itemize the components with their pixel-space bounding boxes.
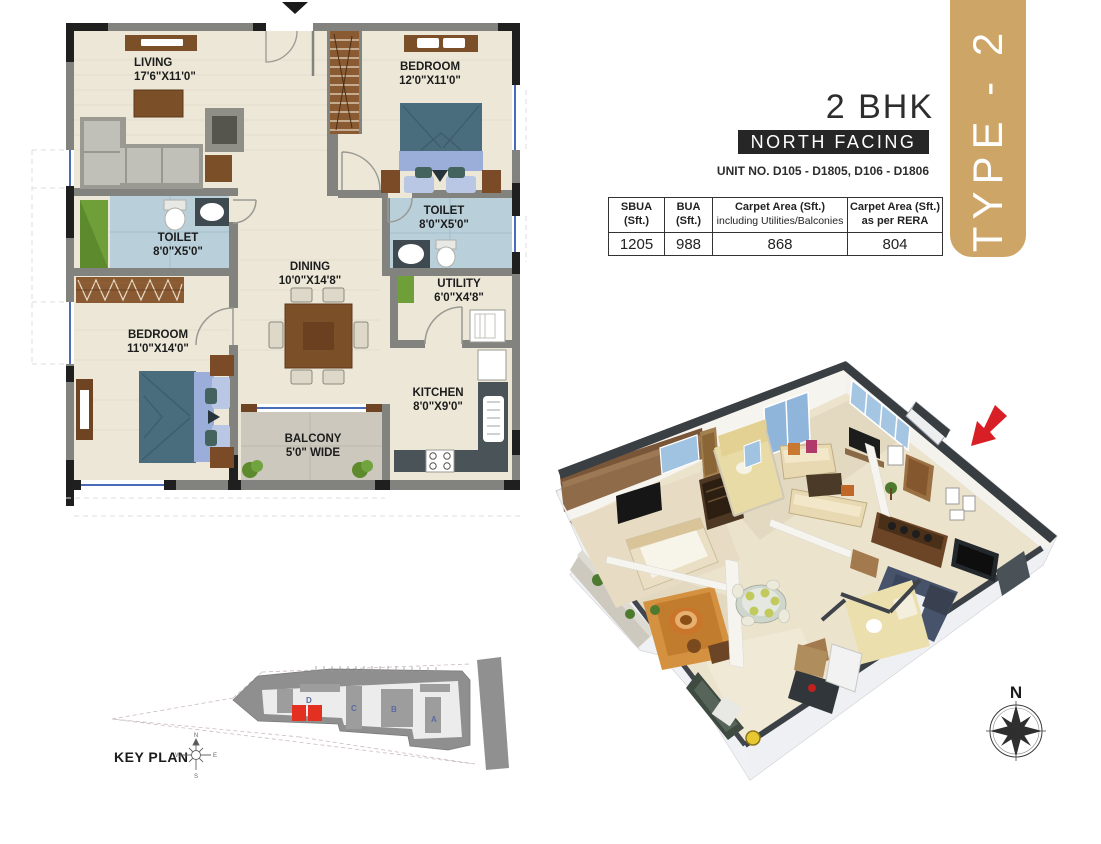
svg-text:11'0"X14'0": 11'0"X14'0" [127,343,189,355]
svg-text:N: N [1010,683,1022,702]
svg-text:N: N [194,733,198,739]
svg-text:17'6"X11'0": 17'6"X11'0" [134,71,196,83]
svg-text:TOILET: TOILET [424,205,465,217]
svg-text:E: E [213,753,217,759]
svg-text:UTILITY: UTILITY [437,278,481,290]
svg-text:BEDROOM: BEDROOM [400,61,460,73]
svg-text:C: C [351,704,357,713]
svg-text:LIVING: LIVING [134,57,172,69]
svg-text:8'0"X5'0": 8'0"X5'0" [419,219,469,231]
svg-text:DINING: DINING [290,261,330,273]
svg-text:BALCONY: BALCONY [285,433,342,445]
svg-text:8'0"X9'0": 8'0"X9'0" [413,401,463,413]
svg-text:5'0" WIDE: 5'0" WIDE [286,447,341,459]
svg-text:B: B [391,705,397,714]
svg-text:S: S [194,774,198,780]
svg-text:BEDROOM: BEDROOM [128,329,188,341]
svg-text:W: W [175,753,181,759]
svg-text:6'0"X4'8": 6'0"X4'8" [434,292,484,304]
svg-text:10'0"X14'8": 10'0"X14'8" [279,275,341,287]
svg-text:A: A [431,715,437,724]
svg-text:D: D [306,696,312,705]
svg-text:8'0"X5'0": 8'0"X5'0" [153,246,203,258]
svg-text:12'0"X11'0": 12'0"X11'0" [399,75,461,87]
svg-text:TOILET: TOILET [158,232,199,244]
svg-text:KITCHEN: KITCHEN [412,387,463,399]
